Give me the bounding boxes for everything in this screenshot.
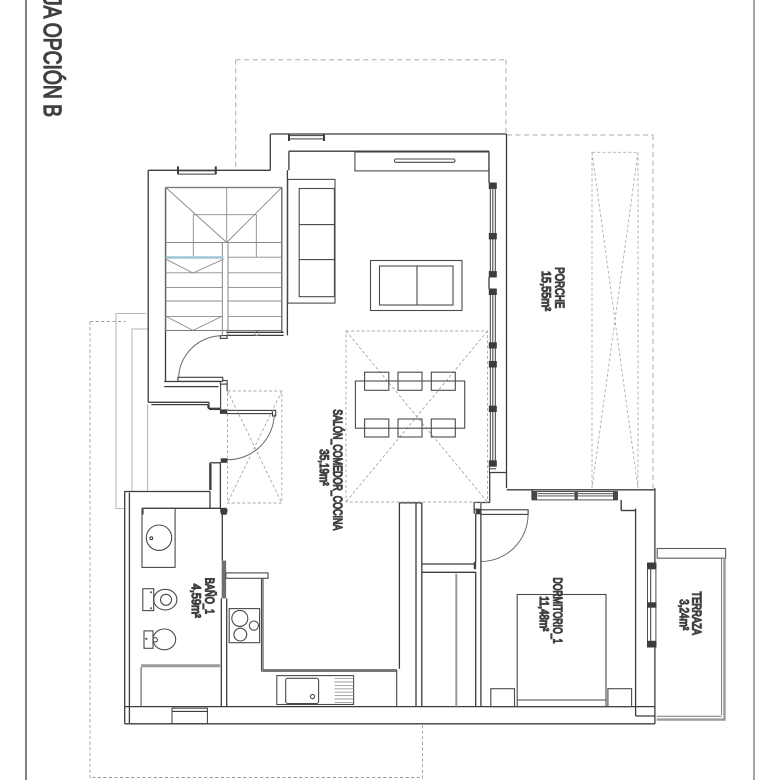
svg-text:4,59m²: 4,59m²: [189, 584, 203, 618]
svg-text:JA OPCIÓN B: JA OPCIÓN B: [38, 0, 66, 117]
svg-text:3,24m²: 3,24m²: [677, 599, 691, 630]
svg-text:15,55m²: 15,55m²: [539, 271, 553, 311]
svg-text:BAÑO_1: BAÑO_1: [203, 578, 218, 615]
svg-text:11,48m²: 11,48m²: [537, 596, 551, 631]
svg-text:PORCHE: PORCHE: [553, 267, 567, 308]
svg-text:SALÓN_COMEDOR_COCINA: SALÓN_COMEDOR_COCINA: [331, 409, 345, 530]
svg-text:DORMITORIO_1: DORMITORIO_1: [551, 578, 565, 644]
svg-text:35,19m²: 35,19m²: [317, 449, 331, 485]
